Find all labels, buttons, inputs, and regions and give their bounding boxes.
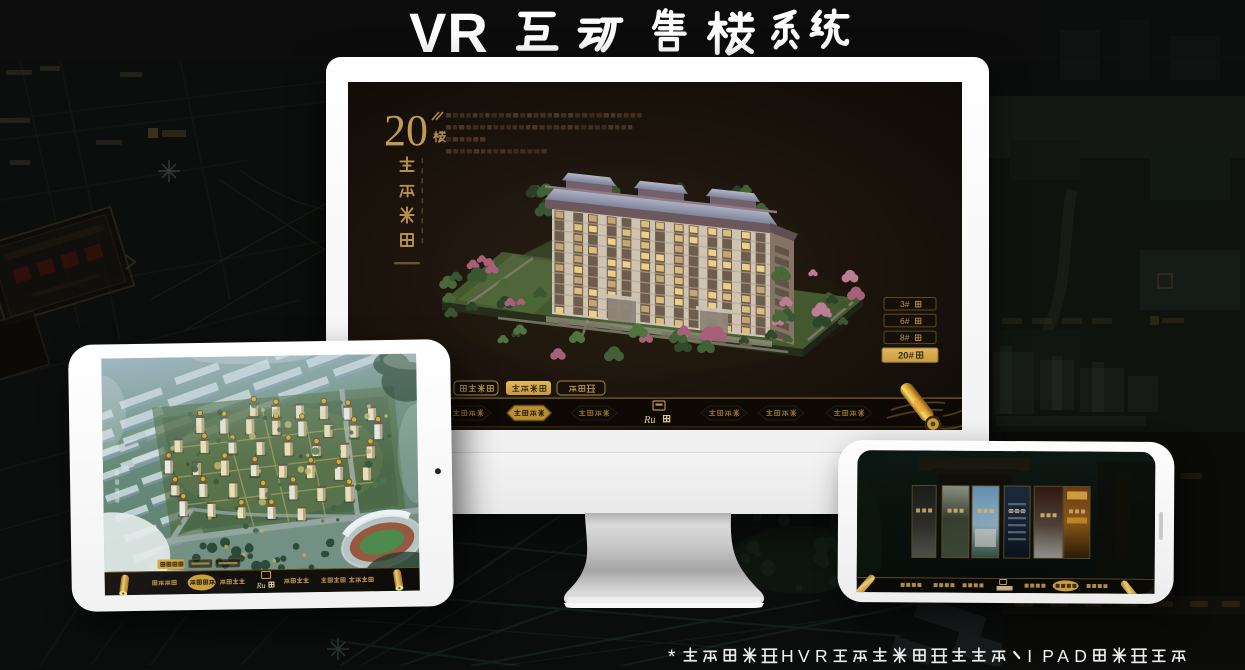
svg-text:R: R (815, 646, 828, 666)
svg-text:P: P (1042, 646, 1054, 666)
svg-text:V: V (798, 646, 810, 666)
svg-text:8#: 8# (900, 333, 910, 343)
svg-text:D: D (1074, 646, 1087, 666)
svg-text:3#: 3# (900, 299, 910, 309)
svg-text:H: H (781, 646, 794, 666)
svg-text:I: I (1027, 646, 1032, 666)
svg-text:Ru: Ru (643, 415, 656, 426)
svg-text:20: 20 (384, 106, 428, 155)
svg-text:20#: 20# (898, 350, 915, 361)
svg-text:6#: 6# (900, 316, 910, 326)
svg-text:VR: VR (409, 1, 489, 60)
svg-text:*: * (668, 647, 676, 668)
svg-text:A: A (1057, 646, 1069, 666)
svg-text:Ru: Ru (256, 581, 266, 590)
